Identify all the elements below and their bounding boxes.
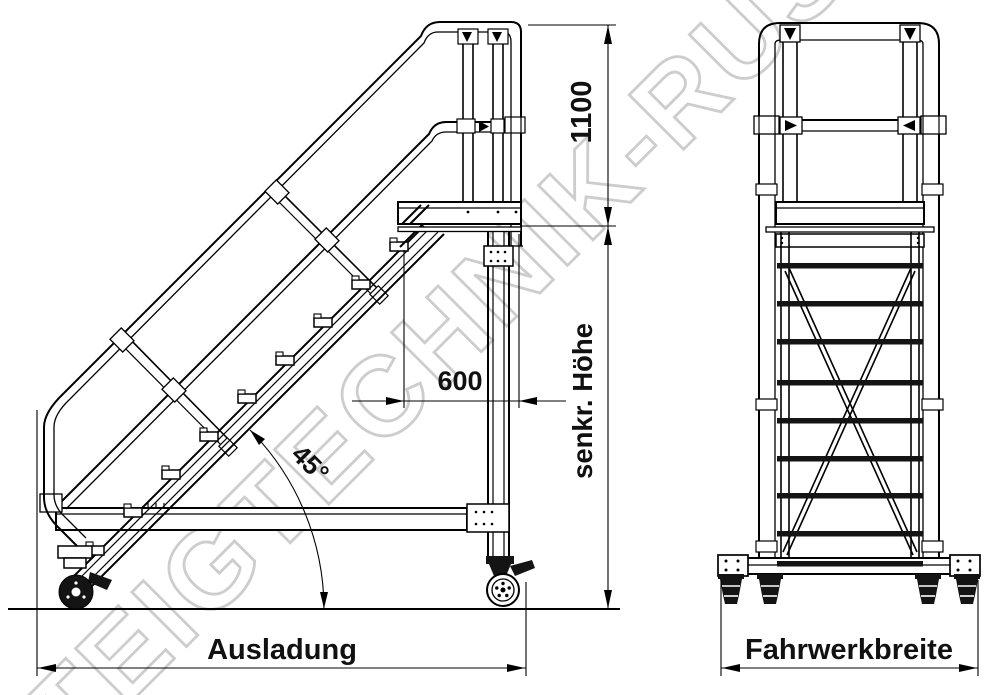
- baluster-clamp: [219, 438, 237, 456]
- dim-1100-label: 1100: [566, 81, 598, 144]
- post-sleeve: [922, 184, 943, 195]
- beam-end-plate: [718, 555, 748, 576]
- post-sleeve: [756, 184, 777, 195]
- tread: [390, 238, 408, 251]
- cross-brace: [783, 268, 917, 555]
- tread: [124, 504, 142, 517]
- front-view: [718, 23, 980, 604]
- tower-rungs: [777, 263, 923, 537]
- tread: [162, 466, 180, 479]
- baluster-clamp: [315, 228, 339, 252]
- caster: [757, 574, 783, 604]
- post-sleeve: [756, 541, 777, 552]
- post-sleeve: [922, 399, 943, 410]
- tower-platform: [766, 202, 934, 247]
- dim-600-label: 600: [437, 366, 482, 396]
- column-joint: [484, 246, 513, 266]
- baluster-clamp: [370, 286, 388, 304]
- drawing-canvas: TEIGTECHNIK-RUS.RU: [0, 0, 1000, 695]
- rear-caster: [486, 556, 535, 606]
- tower-casters: [718, 574, 980, 604]
- horizontal-brace: [56, 503, 467, 530]
- rail-clamp: [457, 119, 475, 133]
- rail-clamp: [491, 119, 504, 133]
- tread: [200, 428, 218, 441]
- dim-fahrwerkbreite-label: Fahrwerkbreite: [745, 634, 953, 666]
- post-collar: [505, 117, 525, 133]
- caster: [915, 574, 941, 604]
- baluster-clamp: [110, 328, 134, 352]
- post-collar: [921, 116, 946, 134]
- chassis-beam: [718, 555, 980, 576]
- dim-senkr-hoehe-label: senkr. Höhe: [567, 323, 598, 479]
- baluster-clamp: [265, 180, 289, 204]
- dimension-fahrwerkbreite: Fahrwerkbreite: [721, 580, 978, 676]
- beam-end-plate: [950, 555, 980, 576]
- technical-drawing: TEIGTECHNIK-RUS.RU: [0, 0, 1000, 695]
- tower-legs: [756, 232, 943, 559]
- tread: [276, 352, 294, 365]
- tread: [314, 314, 332, 327]
- tread: [238, 390, 256, 403]
- brace-plate: [467, 504, 509, 532]
- dim-ausladung-label: Ausladung: [207, 634, 357, 666]
- caster: [954, 574, 980, 604]
- post-sleeve: [756, 399, 777, 410]
- caster: [718, 574, 744, 604]
- post-sleeve: [922, 541, 943, 552]
